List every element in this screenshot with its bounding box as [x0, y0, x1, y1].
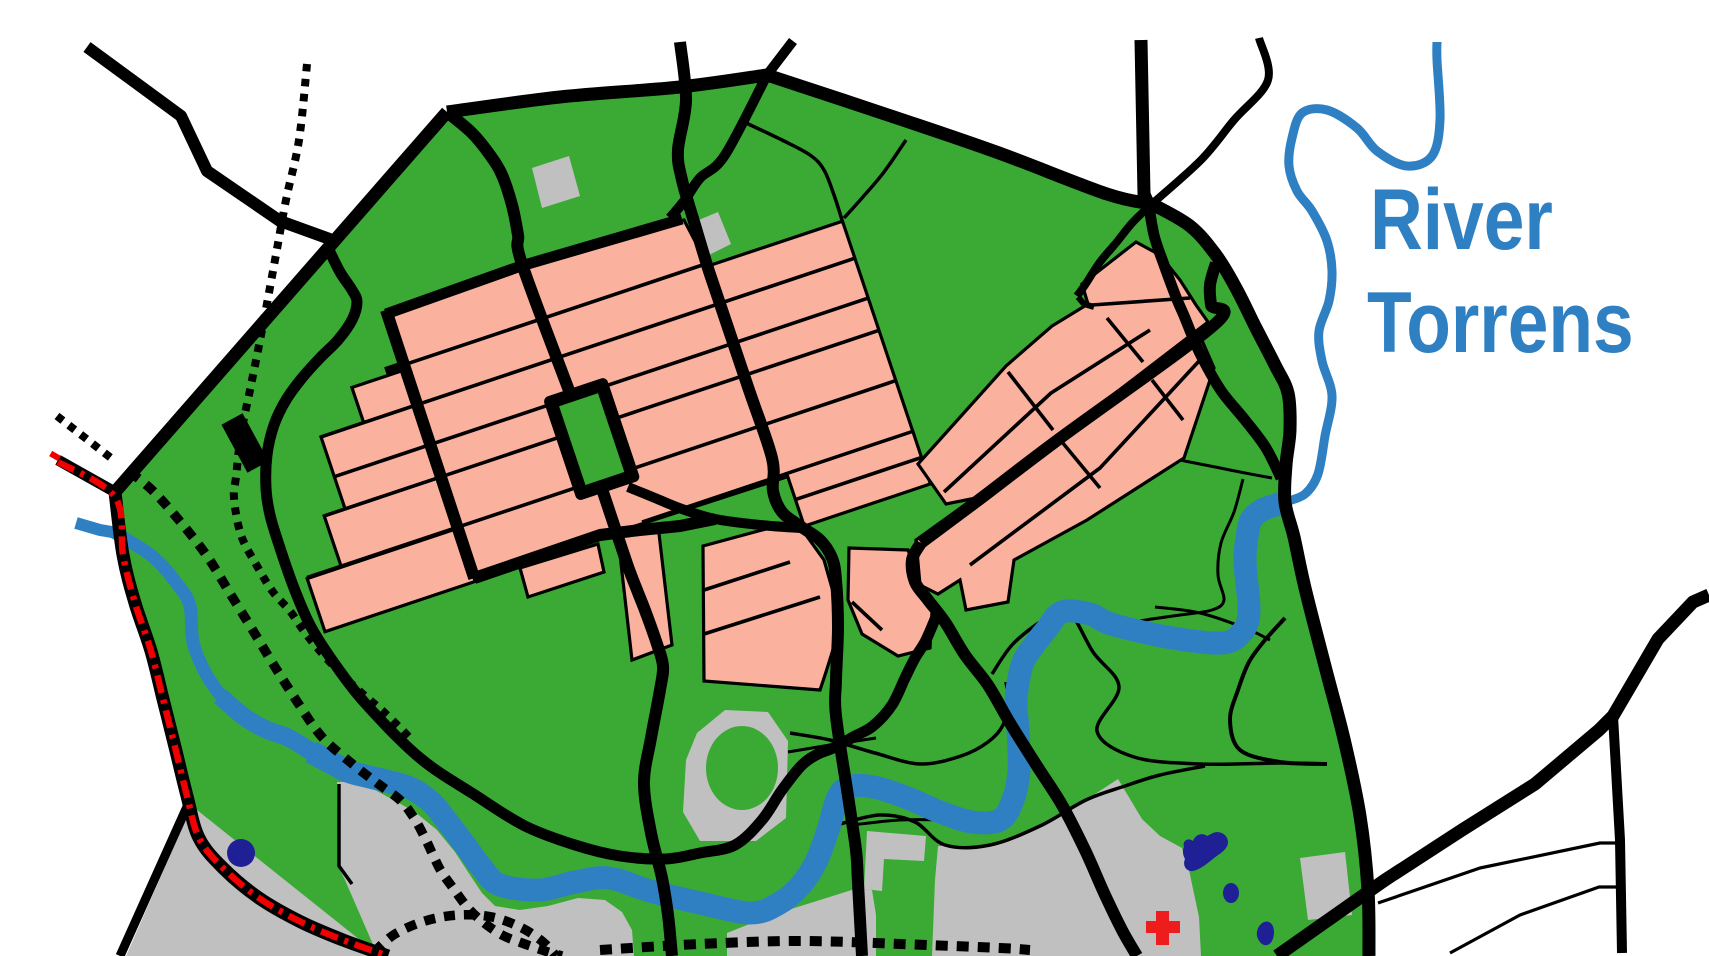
- svg-text:Torrens: Torrens: [1367, 274, 1634, 370]
- svg-text:River: River: [1370, 171, 1553, 267]
